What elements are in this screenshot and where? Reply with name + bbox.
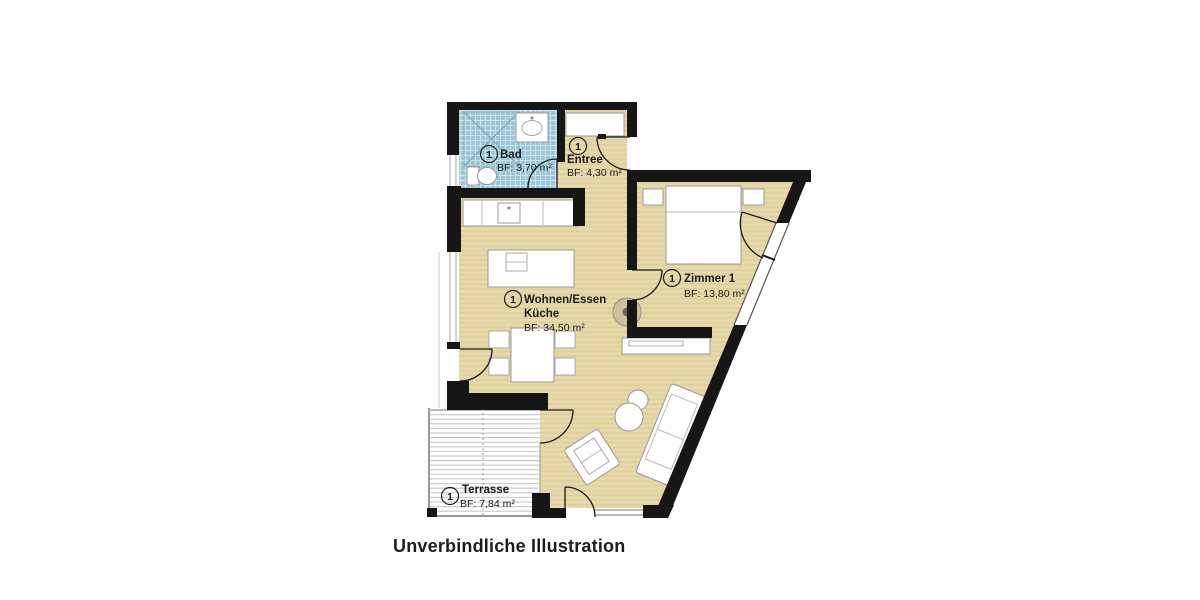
- wall-segment: [627, 110, 637, 137]
- chair: [489, 358, 509, 375]
- sideboard: [622, 338, 710, 354]
- bathroom-window: [447, 155, 459, 186]
- floor-plan-page: 1 Bad BF: 3,70 m² 1 Entree BF: 4,30 m² 1…: [0, 0, 1200, 600]
- coffee-table-large: [615, 403, 643, 431]
- room-name: Entree: [567, 154, 603, 166]
- room-index: 1: [575, 141, 581, 153]
- dining-table: [511, 328, 554, 382]
- room-area: BF: 4,30 m²: [567, 167, 622, 179]
- room-name: Terrasse: [462, 484, 509, 496]
- wall-segment: [532, 493, 550, 518]
- wall-segment: [447, 342, 460, 349]
- terrace-post: [427, 508, 437, 517]
- room-index: 1: [486, 149, 492, 161]
- nightstand: [643, 189, 663, 205]
- kitchen-sink: [498, 203, 520, 223]
- room-area: BF: 3,70 m²: [497, 162, 552, 174]
- bathroom-sink: [516, 113, 548, 142]
- wall-segment: [459, 188, 585, 198]
- wall-segment: [447, 102, 459, 155]
- room-name: Bad: [500, 149, 522, 161]
- chair: [489, 331, 509, 348]
- room-index: 1: [510, 294, 516, 306]
- toilet: [467, 167, 497, 185]
- room-name: Wohnen/Essen: [524, 294, 606, 306]
- kitchen-counter: [463, 200, 577, 226]
- kitchen-island: [488, 250, 574, 287]
- wall-segment: [557, 110, 565, 162]
- wall-segment: [627, 182, 637, 270]
- room-area: BF: 34,50 m²: [524, 322, 585, 334]
- room-area: BF: 13,80 m²: [684, 288, 745, 300]
- wall-segment: [447, 186, 461, 252]
- chair: [555, 358, 575, 375]
- bed: [666, 186, 741, 264]
- floor-plan: 1 Bad BF: 3,70 m² 1 Entree BF: 4,30 m² 1…: [0, 0, 1200, 600]
- wall-segment: [643, 505, 674, 518]
- room-index: 1: [669, 273, 675, 285]
- wall-segment: [627, 170, 811, 182]
- room-area: BF: 7,84 m²: [460, 498, 515, 510]
- wardrobe: [566, 113, 624, 136]
- wall-segment: [627, 300, 637, 327]
- room-name-line2: Küche: [524, 308, 559, 320]
- room-index: 1: [447, 491, 453, 503]
- wall-segment: [447, 393, 548, 410]
- wall-segment: [573, 198, 585, 226]
- plan-caption: Unverbindliche Illustration: [393, 536, 625, 557]
- bottom-window: [595, 510, 643, 515]
- wall-segment: [447, 102, 637, 110]
- wall-segment: [550, 508, 566, 518]
- room-name: Zimmer 1: [684, 273, 736, 285]
- nightstand: [743, 189, 764, 205]
- wall-segment: [627, 327, 712, 338]
- living-room-window: [448, 252, 459, 342]
